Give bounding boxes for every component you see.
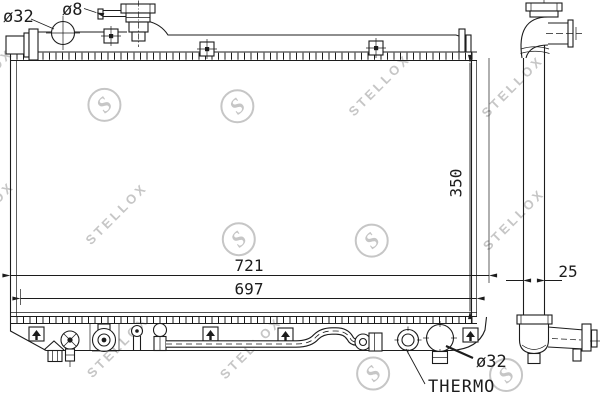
mounting-bracket-icon <box>463 328 478 342</box>
dim-label-overflow-diameter: ø8 <box>62 0 82 20</box>
inlet-port-circle <box>46 16 80 50</box>
side-bottom-tank <box>517 315 552 364</box>
radiator-front-view <box>6 1 487 368</box>
dim-label-inlet-diameter: ø32 <box>3 7 34 27</box>
dim-label-overall-width: 721 <box>235 256 264 275</box>
thermo-label: THERMO <box>428 377 495 397</box>
oil-cooler-pipe <box>166 331 382 351</box>
top-bracket-icon <box>366 38 386 58</box>
side-outlet-pipe <box>548 324 600 361</box>
oil-cooler-fitting <box>154 324 167 351</box>
top-bracket-icon <box>101 26 121 46</box>
drain-petcock <box>90 324 119 352</box>
top-right-flange <box>459 29 471 52</box>
radiator-side-view <box>517 0 600 364</box>
radiator-drawing: 721 697 350 25 ø32 ø8 ø32 THERMO <box>0 0 600 400</box>
outlet-port <box>423 321 457 364</box>
dim-label-outlet-diameter: ø32 <box>476 352 507 372</box>
top-wall-line-right <box>147 21 471 52</box>
side-inlet-elbow <box>521 17 583 58</box>
diagram-canvas: STELLOXSSTELLOXSSTELLOXSSTELLOXSSTELLOXS… <box>0 0 600 400</box>
oil-cooler-fitting <box>132 326 143 351</box>
dim-label-core-width: 697 <box>235 280 264 299</box>
mounting-bracket-icon <box>29 327 44 341</box>
bottom-left-pin <box>48 351 62 362</box>
dim-label-core-height: 350 <box>447 169 466 198</box>
dim-label-depth: 25 <box>558 262 577 281</box>
top-bracket-icon <box>197 39 217 59</box>
filler-cap <box>121 1 155 48</box>
thermo-switch-port <box>395 327 422 354</box>
side-filler-cap <box>526 0 562 17</box>
mounting-bracket-icon <box>278 328 293 342</box>
mounting-bracket-icon <box>203 327 218 341</box>
